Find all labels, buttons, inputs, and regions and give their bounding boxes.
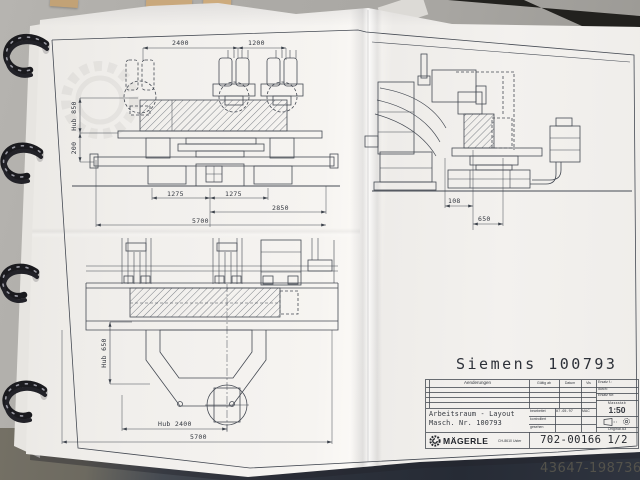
binder-ring (6, 384, 48, 421)
binder-ring (4, 146, 44, 182)
binder-ring (3, 267, 40, 301)
binder-ring (6, 37, 50, 76)
photo-of-technical-drawing: 2400 1200 Hub 850 200 1275 1275 2850 570… (0, 0, 640, 480)
photo-id-watermark: 43647-19873695 (540, 461, 640, 476)
binder-rings (0, 0, 640, 480)
